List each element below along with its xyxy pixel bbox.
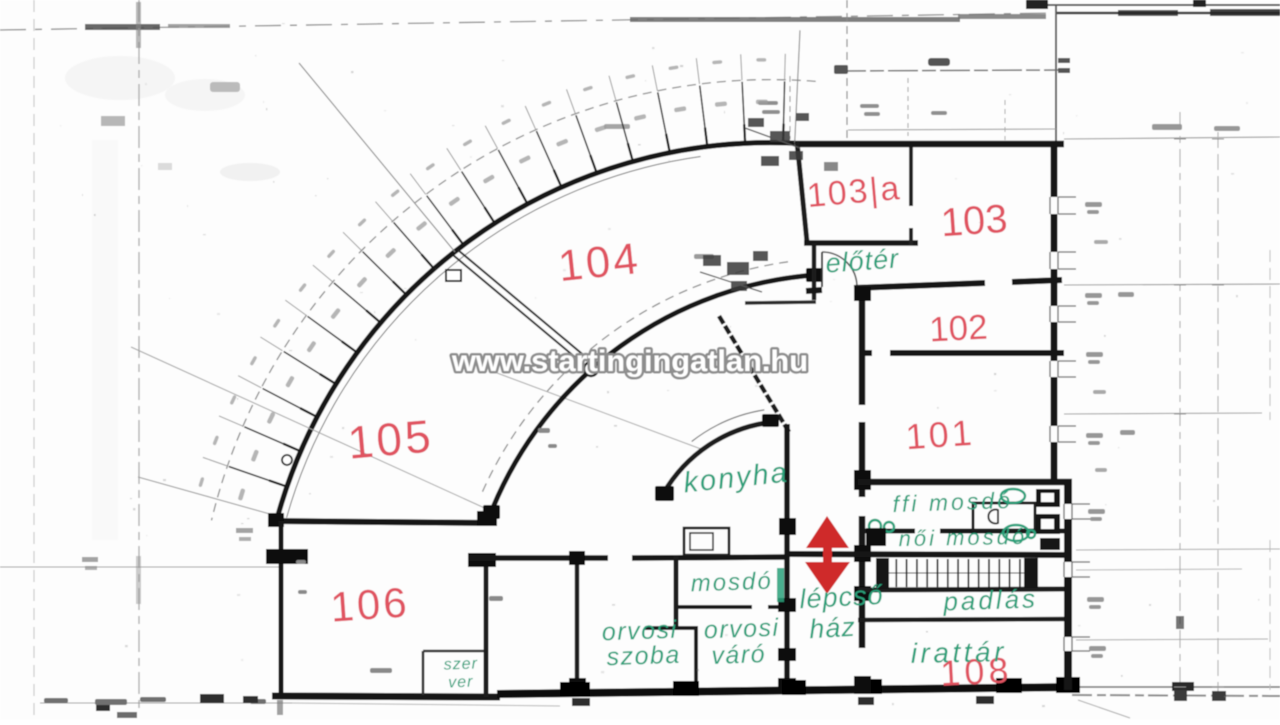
svg-text:102: 102: [928, 308, 988, 350]
svg-text:női mosdó: női mosdó: [898, 524, 1027, 551]
svg-text:orvosi: orvosi: [703, 614, 780, 645]
svg-text:101: 101: [904, 412, 976, 458]
svg-text:ffi mosdó: ffi mosdó: [892, 487, 1013, 517]
svg-text:106: 106: [329, 578, 411, 630]
svg-text:ház: ház: [809, 612, 857, 644]
svg-text:irattár: irattár: [911, 636, 1008, 669]
svg-text:104: 104: [556, 234, 643, 291]
svg-text:szer: szer: [443, 655, 478, 673]
svg-text:előtér: előtér: [825, 243, 900, 278]
svg-text:105: 105: [346, 409, 436, 468]
svg-text:szoba: szoba: [606, 641, 681, 672]
svg-text:padlás: padlás: [942, 583, 1039, 616]
svg-text:lépcső: lépcső: [799, 580, 885, 614]
svg-text:103: 103: [939, 197, 1009, 246]
svg-text:mosdó: mosdó: [690, 568, 773, 598]
svg-text:váró: váró: [711, 640, 767, 670]
svg-text:www.startingingatlan.hu: www.startingingatlan.hu: [451, 345, 808, 378]
svg-text:ver: ver: [448, 674, 474, 692]
